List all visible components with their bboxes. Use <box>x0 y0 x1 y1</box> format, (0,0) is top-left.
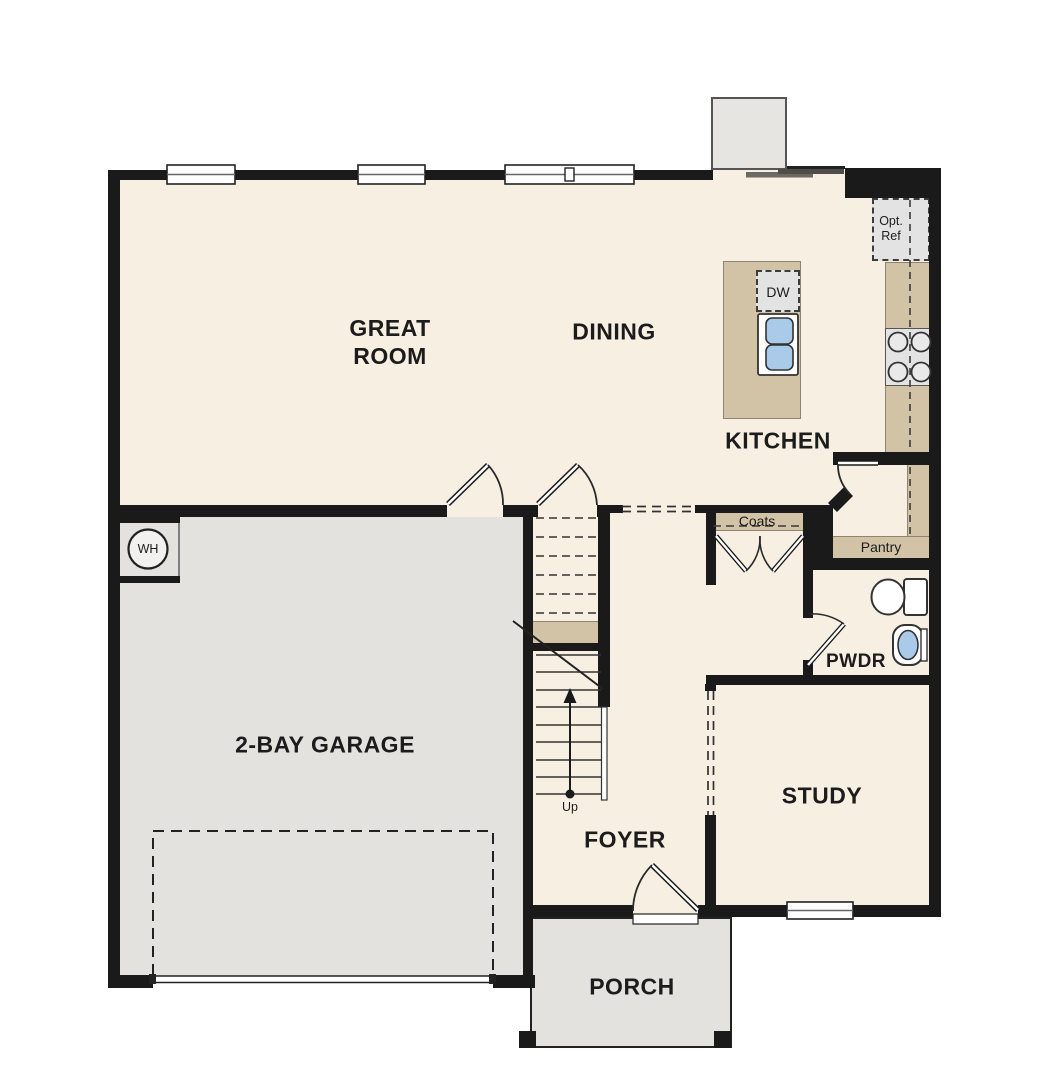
garage-front-wall-right <box>493 975 535 988</box>
front-wall-3 <box>852 905 941 917</box>
greatroom-label-line2: ROOM <box>353 343 427 369</box>
waterheater-niche-bottom <box>115 576 180 583</box>
coats-right-wall <box>803 508 833 560</box>
coats-label: Coats <box>739 513 776 529</box>
range-stove <box>886 329 932 385</box>
kitchen-corner-notch <box>845 168 941 198</box>
dining-label: DINING <box>572 319 656 346</box>
waterheater-niche-top <box>112 517 180 523</box>
coats-left-wall <box>706 513 716 585</box>
waterheater-label: WH <box>138 542 159 556</box>
kitchen-door-jamb <box>833 452 850 465</box>
stair-landing-wall <box>533 643 598 651</box>
powder-label: PWDR <box>826 651 886 673</box>
study-left-wall <box>705 815 716 917</box>
powder-left-wall <box>803 570 813 618</box>
stair-right-wall <box>598 505 610 707</box>
kitchen-label: KITCHEN <box>725 428 831 455</box>
foyer-label: FOYER <box>584 827 666 854</box>
porch-label: PORCH <box>589 974 675 1001</box>
optref-label-line1: Opt. <box>879 214 903 228</box>
pantry-bottom-wall <box>803 558 941 570</box>
dishwasher-label: DW <box>766 284 789 300</box>
exterior-wall-right <box>929 168 941 917</box>
pantry-label: Pantry <box>861 539 901 555</box>
powder-study-wall <box>706 675 941 685</box>
front-wall-1 <box>523 905 633 917</box>
chimney <box>711 97 787 170</box>
garage-front-wall-left <box>108 975 153 988</box>
optref-label-line2: Ref <box>881 229 900 243</box>
exterior-wall-top-4 <box>633 170 713 180</box>
greatroom-label-line1: GREAT <box>349 315 430 341</box>
front-wall-2 <box>698 905 788 917</box>
stair-landing <box>533 622 598 643</box>
exterior-wall-top-2 <box>233 170 359 180</box>
fireplace-edge-line <box>787 166 845 169</box>
garage-greatroom-wall-1 <box>108 505 447 517</box>
kitchen-bottom-wall <box>850 452 929 465</box>
study-label: STUDY <box>782 783 862 810</box>
porch-post-right <box>714 1031 731 1048</box>
floor-plan: GREAT ROOM DINING KITCHEN 2-BAY GARAGE F… <box>0 0 1041 1069</box>
optref-label: Opt. Ref <box>879 214 903 244</box>
study-left-wall-upper-stub <box>705 684 716 691</box>
greatroom-label: GREAT ROOM <box>349 314 430 370</box>
exterior-wall-top-3 <box>424 170 506 180</box>
porch-post-left <box>519 1031 536 1048</box>
stairs-up-label: Up <box>562 800 578 814</box>
garage-label: 2-BAY GARAGE <box>235 732 415 759</box>
